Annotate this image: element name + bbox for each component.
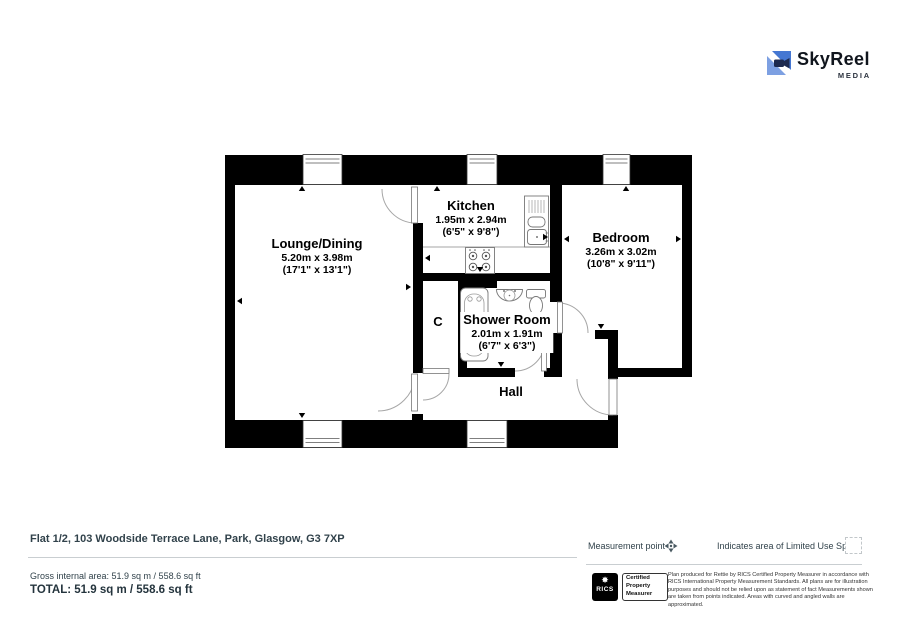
wall-left [225,185,235,448]
wall-below-entrance [608,415,618,448]
door-leaf-cupboard [423,369,449,374]
measurement-arrow [406,284,411,290]
room-dim-metric: 3.26m x 3.02m [585,246,656,259]
window [467,155,497,185]
window [303,421,342,448]
rics-emblem-icon: ✸ [592,576,618,585]
room-name: Bedroom [585,230,656,246]
measurement-arrow [299,186,305,191]
room-label-bedroom: Bedroom 3.26m x 3.02m (10'8" x 9'11") [582,230,659,271]
room-dim-imperial: (6'7" x 6'3") [463,340,550,353]
room-label-hall: Hall [497,384,525,399]
door-arc-lounge [378,374,415,411]
wall-tick-lounge-door [412,414,423,420]
wall-bottom [225,420,618,448]
rics-certified-label: Certified Property Measurer [622,573,668,601]
wall-lounge-divider [413,223,423,373]
window [467,421,507,448]
room-label-cupboard: C [431,314,444,329]
door-leaf-kitchen [412,187,418,223]
room-dim-metric: 2.01m x 1.91m [463,328,550,341]
room-name: Lounge/Dining [272,236,363,252]
measurement-arrow [676,236,681,242]
limited-use-space-icon [845,537,862,554]
rics-logo: ✸ RICS [592,573,618,601]
room-label-lounge: Lounge/Dining 5.20m x 3.98m (17'1" x 13'… [269,236,366,277]
door-leaf-bedroom [558,302,563,333]
measurement-arrow [623,186,629,191]
gross-internal-area: Gross internal area: 51.9 sq m / 558.6 s… [30,571,201,581]
divider-right [586,564,862,565]
kitchen-sink-icon [525,196,549,247]
toilet-icon [527,290,546,315]
basin-icon [497,290,523,302]
measurement-arrow [498,362,504,367]
door-arc-entrance [577,379,613,415]
plan-disclaimer: Plan produced for Rettie by RICS Certifi… [668,572,876,609]
window [303,155,342,185]
door-arc-cupboard [423,374,449,400]
room-label-kitchen: Kitchen 1.95m x 2.94m (6'5" x 9'8") [432,198,509,239]
measurement-arrow [564,236,569,242]
rics-badge-text: RICS [592,587,618,594]
door-arc-kitchen [382,189,416,223]
measurement-arrow [299,413,305,418]
wall-chunk [467,273,497,288]
legend-measurement-point-label: Measurement point [588,541,665,551]
wall-hall-stub-v [608,339,618,379]
wall-bedroom-bottom [608,368,692,377]
total-area: TOTAL: 51.9 sq m / 558.6 sq ft [30,584,193,596]
room-dim-imperial: (17'1" x 13'1") [272,264,363,277]
room-dim-imperial: (10'8" x 9'11") [585,258,656,271]
room-name: Shower Room [463,312,550,328]
measurement-arrow [598,324,604,329]
divider-left [28,557,577,558]
window [603,155,630,185]
wall-hall-stub-h [595,330,618,339]
measurement-arrow [434,186,440,191]
room-dim-metric: 5.20m x 3.98m [272,252,363,265]
room-label-shower: Shower Room 2.01m x 1.91m (6'7" x 6'3") [460,312,553,353]
room-name: Kitchen [435,198,506,214]
measurement-arrow [425,255,430,261]
wall-bedroom-left-upper [550,185,562,302]
legend-limited-use-label: Indicates area of Limited Use Space [717,541,862,551]
door-leaf-entrance [609,379,617,415]
door-leaf-lounge [412,374,418,411]
measurement-arrow [237,298,242,304]
wall-shower-bottom [458,368,515,377]
property-address: Flat 1/2, 103 Woodside Terrace Lane, Par… [30,533,345,545]
room-dim-metric: 1.95m x 2.94m [435,214,506,227]
room-dim-imperial: (6'5" x 9'8") [435,226,506,239]
floorplan-page: SkyReel MEDIA [0,0,900,636]
measurement-point-icon [663,538,679,554]
floor-plan-svg [0,0,900,520]
wall-right [682,155,692,377]
